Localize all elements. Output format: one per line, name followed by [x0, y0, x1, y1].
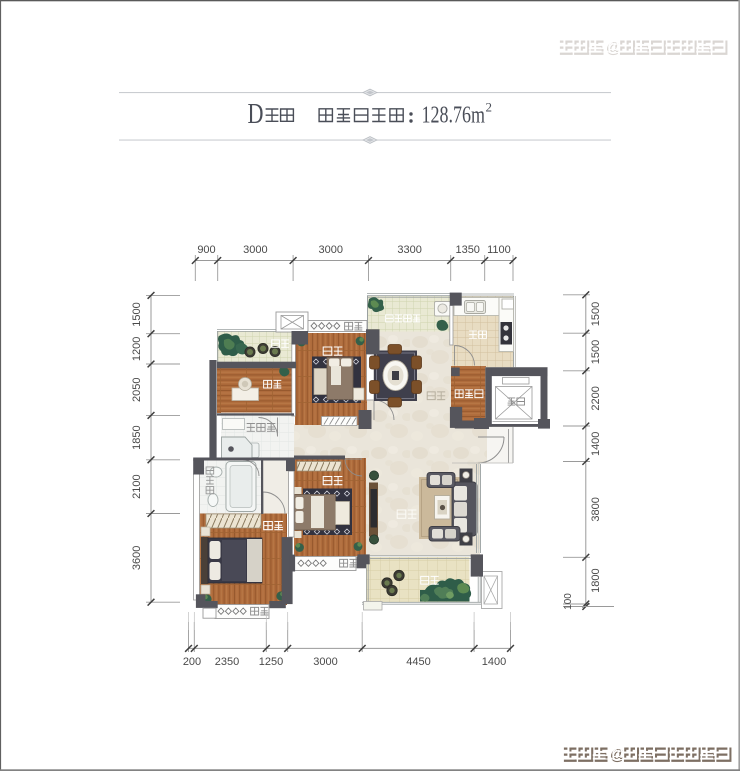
- svg-text:3000: 3000: [319, 244, 343, 256]
- svg-text:1350: 1350: [455, 244, 479, 256]
- svg-text:3800: 3800: [590, 497, 602, 521]
- svg-text:3600: 3600: [131, 546, 143, 570]
- svg-text:1500: 1500: [590, 302, 602, 326]
- svg-text:1400: 1400: [590, 432, 602, 456]
- svg-text:100: 100: [563, 593, 574, 610]
- svg-text:2350: 2350: [215, 656, 239, 668]
- svg-text:2200: 2200: [590, 386, 602, 410]
- svg-text:1250: 1250: [259, 656, 283, 668]
- svg-text:3000: 3000: [243, 244, 267, 256]
- svg-text:2050: 2050: [131, 377, 143, 401]
- svg-text:200: 200: [183, 656, 201, 668]
- svg-text:@: @: [608, 745, 623, 762]
- svg-text:1800: 1800: [590, 568, 602, 592]
- svg-text:4450: 4450: [406, 656, 430, 668]
- svg-text:128.76m: 128.76m: [422, 103, 486, 129]
- svg-text:900: 900: [197, 244, 215, 256]
- svg-text:1500: 1500: [590, 340, 602, 364]
- svg-text:3300: 3300: [397, 244, 421, 256]
- svg-text:1400: 1400: [482, 656, 506, 668]
- svg-text:D: D: [248, 99, 264, 130]
- svg-text:2100: 2100: [131, 474, 143, 498]
- svg-text:1850: 1850: [131, 425, 143, 449]
- svg-text:2: 2: [486, 100, 493, 115]
- svg-text:3000: 3000: [313, 656, 337, 668]
- svg-text:1200: 1200: [131, 337, 143, 361]
- svg-text:@: @: [604, 38, 619, 55]
- svg-text:1500: 1500: [131, 302, 143, 326]
- svg-text:1100: 1100: [487, 244, 511, 256]
